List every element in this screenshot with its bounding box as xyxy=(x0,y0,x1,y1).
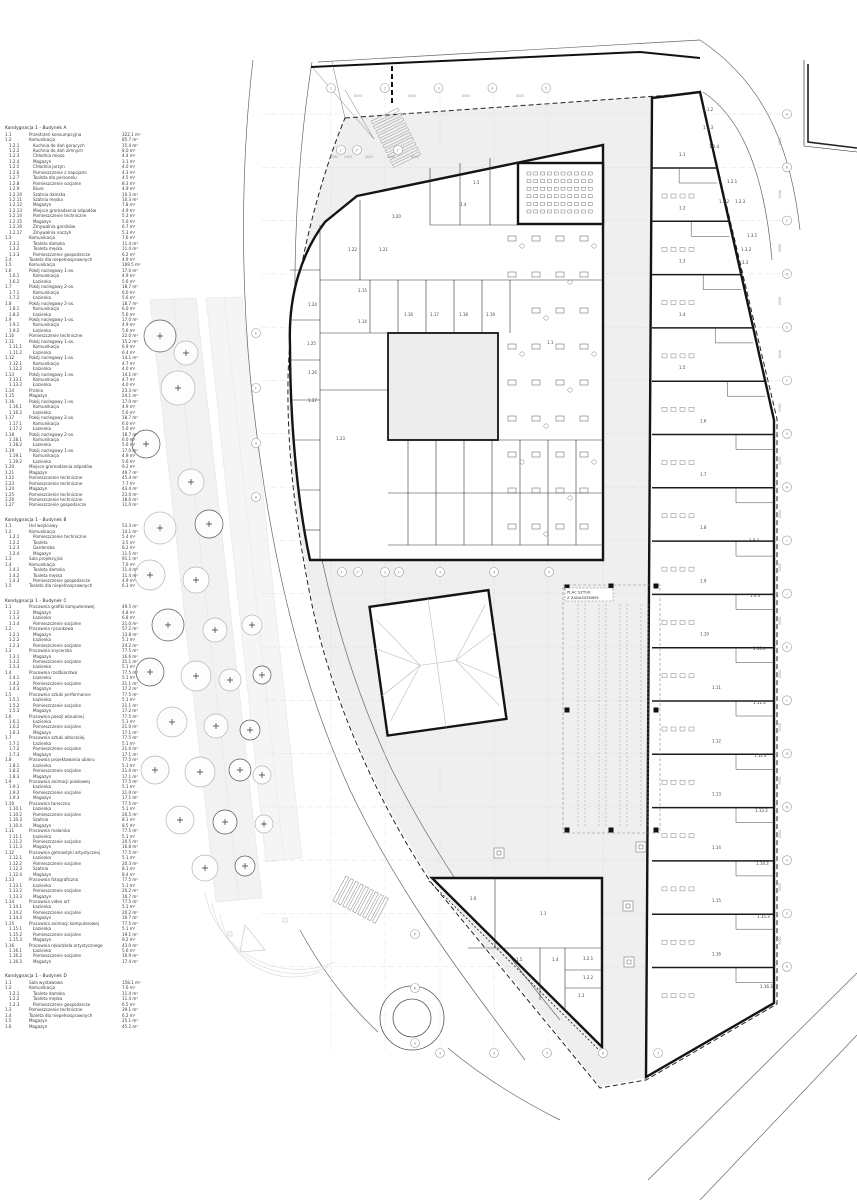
room-number-label: 1.16 xyxy=(712,952,721,957)
dimension-text: 8000 xyxy=(408,94,416,98)
column-icon xyxy=(654,708,659,713)
room-area: 17.4 m² xyxy=(122,959,147,964)
grid-bubble-label: F xyxy=(255,386,257,390)
room-number-label: 1.26 xyxy=(308,370,317,375)
room-number-label: 1.1 xyxy=(679,152,686,157)
dimension-text: 2000 xyxy=(387,155,395,159)
dimension-text: 8000 xyxy=(778,190,782,198)
room-number: 1.16.3 xyxy=(5,959,33,964)
room-number-label: 1.2.3 xyxy=(735,199,746,204)
column-marker xyxy=(624,957,634,967)
legend-section: Kondygnacja 1 - Budynek B1.1Hol wejściow… xyxy=(5,518,147,589)
room-number-label: 1.14 xyxy=(358,319,367,324)
room-number-label: 1.3 xyxy=(679,259,686,264)
grid-bubble-label: L xyxy=(786,699,788,703)
dimension-text: 2405 xyxy=(344,155,352,159)
room-number: 1.6 xyxy=(5,1024,29,1029)
zebra-stripe xyxy=(348,884,364,910)
room-number-label: 1.2.1 xyxy=(583,956,594,961)
zebra-stripe xyxy=(363,892,379,918)
room-number-label: 1.2.2 xyxy=(719,199,730,204)
room-number-label: 1.13 xyxy=(712,792,721,797)
dimension-text: 8000 xyxy=(778,403,782,411)
room-number-label: 1.21 xyxy=(379,247,388,252)
dimension-text: 8000 xyxy=(354,94,362,98)
room-number-label: 1.20 xyxy=(392,214,401,219)
grid-bubble-label: D xyxy=(786,272,789,276)
courtyard xyxy=(388,333,498,440)
dimension-text: 8000 xyxy=(516,94,524,98)
column-marker xyxy=(636,842,646,852)
room-number-label: 1.5 xyxy=(516,957,523,962)
dimension-text: 8000 xyxy=(778,777,782,785)
room-number-label: 1.6 xyxy=(470,896,477,901)
room-number-label: 1.25 xyxy=(307,341,316,346)
grid-bubble-label: O xyxy=(786,859,789,863)
room-number: 1.27 xyxy=(5,502,29,507)
column-icon xyxy=(565,828,570,833)
room-number-label: 1.5 xyxy=(679,365,686,370)
dimension-text: 8000 xyxy=(778,617,782,625)
grid-bubble-label: 5 xyxy=(548,570,550,574)
grid-bubble-label: M xyxy=(785,752,788,756)
room-number-label: 1.15 xyxy=(358,288,367,293)
room-number-label: 1.11 xyxy=(712,685,721,690)
room-number-label: 1.8 xyxy=(700,525,707,530)
grid-bubble-label: J xyxy=(785,592,787,596)
room-number-label: 1.7 xyxy=(700,472,707,477)
grid-bubble-label: H xyxy=(255,495,258,499)
grid-bubble-label: 3 xyxy=(439,1051,441,1055)
grid-bubble-label: G xyxy=(255,441,258,445)
room-number-label: 1.10 xyxy=(700,632,709,637)
room-number-label: 1.2 xyxy=(679,205,686,210)
room-number-label: 1.1.4 xyxy=(709,144,720,149)
grid-bubble-label: 5 xyxy=(546,1051,548,1055)
room-number-label: 1.14.3 xyxy=(756,861,769,866)
zebra-stripe xyxy=(367,894,383,920)
zebra-stripe xyxy=(372,897,388,923)
dimension-text: 8000 xyxy=(778,883,782,891)
grid-bubble-label: 2 xyxy=(384,86,386,90)
dimension-text: 8000 xyxy=(778,670,782,678)
grid-bubble-label: N xyxy=(786,805,789,809)
room-number-label: 1.4 xyxy=(460,202,467,207)
room-number-label: 1.15 xyxy=(712,898,721,903)
grid-bubble-label: 5 xyxy=(545,86,547,90)
zebra-stripe xyxy=(358,889,374,915)
column-marker xyxy=(623,901,633,911)
dimension-text: 8000 xyxy=(778,936,782,944)
plac-label-line2: Z ZADASZENIEM xyxy=(567,595,599,600)
room-number-label: 1.10.4 xyxy=(753,646,766,651)
room-number-label: 1.9 xyxy=(700,578,707,583)
room-number-label: 1.1 xyxy=(547,340,554,345)
legend-row: 1.27Pomieszczenie gospodarcze11.0 m² xyxy=(5,502,147,507)
grid-bubble-label: 1" xyxy=(356,570,360,574)
room-number-label: 1.3.3 xyxy=(738,260,749,265)
dimension-text: 4000 xyxy=(365,155,373,159)
playground xyxy=(205,893,335,977)
building-c xyxy=(646,92,774,1077)
room-name: Magazyn xyxy=(33,959,122,964)
dimension-text: 8000 xyxy=(778,244,782,252)
room-number-label: 1.8.3 xyxy=(749,538,760,543)
room-name: Pomieszczenie gospodarcze xyxy=(29,502,122,507)
dimension-text: 6000 xyxy=(411,155,419,159)
room-number-label: 1.12.4 xyxy=(754,753,767,758)
room-number-label: 1.1 xyxy=(540,911,547,916)
grid-bubble-label: 2' xyxy=(397,570,400,574)
room-number-label: 1.18 xyxy=(459,312,468,317)
room-number-label: 1.6 xyxy=(700,419,707,424)
legend-row: 1.5Toaleta dla niepełnosprawnych6.3 m² xyxy=(5,583,147,588)
column-icon xyxy=(654,828,659,833)
zebra-stripe xyxy=(343,881,359,907)
room-number-label: 1.5 xyxy=(473,180,480,185)
room-number-label: 1.23 xyxy=(336,436,345,441)
column-icon xyxy=(609,828,614,833)
room-number-label: 1.3.2 xyxy=(741,247,752,252)
grid-bubble-label: 1' xyxy=(340,570,343,574)
room-number-label: 1.3.1 xyxy=(747,233,758,238)
room-number-label: 1.3 xyxy=(578,993,585,998)
grid-bubble-label: G xyxy=(786,432,789,436)
grid-bubble-label: 7 xyxy=(657,1051,659,1055)
dimension-text: 8000 xyxy=(462,94,470,98)
room-number: 1.5 xyxy=(5,583,29,588)
room-number-label: 1.4 xyxy=(679,312,686,317)
grid-bubble-label: F xyxy=(786,379,788,383)
building-d-outline xyxy=(432,878,602,1047)
zebra-stripe xyxy=(333,876,349,902)
neighbour-building xyxy=(804,60,857,152)
grid-bubble-label: 2' xyxy=(396,148,399,152)
room-name: Toaleta dla niepełnosprawnych xyxy=(29,583,122,588)
dimension-text: 8000 xyxy=(778,137,782,145)
legend-row: 1.6Magazyn45.2 m² xyxy=(5,1024,147,1029)
room-number-label: 1.2.1 xyxy=(727,179,738,184)
room-name: Magazyn xyxy=(29,1024,122,1029)
room-area: 11.0 m² xyxy=(122,502,147,507)
room-number-label: 1.4 xyxy=(552,957,559,962)
plac-label-line1: PLAC SZTUK xyxy=(567,590,591,595)
grid-bubble-label: H xyxy=(786,486,789,490)
dimension-text: 8000 xyxy=(778,510,782,518)
room-number-label: 1.16 xyxy=(404,312,413,317)
room-number-label: 1.17 xyxy=(430,312,439,317)
zebra-stripe xyxy=(353,887,369,913)
column-icon xyxy=(565,708,570,713)
room-area: 6.3 m² xyxy=(122,583,147,588)
dimension-text: 1560 xyxy=(330,155,338,159)
room-number-label: 1.15.3 xyxy=(757,914,770,919)
grid-bubble-label: 3 xyxy=(439,570,441,574)
room-number-label: 1.11.3 xyxy=(753,700,766,705)
grid-bubble-label: 1 xyxy=(330,86,332,90)
room-area: 45.2 m² xyxy=(122,1024,147,1029)
zebra-stripe xyxy=(338,879,354,905)
room-number-label: 1.14 xyxy=(712,845,721,850)
room-number-label: 1.1.2 xyxy=(703,107,714,112)
grid-bubble-label: 1' xyxy=(339,148,342,152)
crosswalk-south xyxy=(333,876,389,923)
room-number-label: 1.24 xyxy=(308,302,317,307)
dimension-text: 8000 xyxy=(778,457,782,465)
column-icon xyxy=(654,584,659,589)
dimension-text: 8000 xyxy=(778,350,782,358)
grid-bubble-label: 2 xyxy=(384,570,386,574)
room-number-label: 1.16.3 xyxy=(760,984,773,989)
room-number-label: 1.1.3 xyxy=(703,125,714,130)
legend-row: 1.16.3Magazyn17.4 m² xyxy=(5,959,147,964)
room-number-label: 1.13.3 xyxy=(755,808,768,813)
legend-section: Kondygnacja 1 - Budynek C1.1Pracownia gr… xyxy=(5,599,147,965)
room-number-label: 1.27 xyxy=(308,398,317,403)
room-schedule-legend: Kondygnacja 1 - Budynek A1.1Przestrzeń k… xyxy=(5,126,147,1039)
dimension-text: 8000 xyxy=(778,723,782,731)
dimension-text: 8000 xyxy=(778,830,782,838)
room-number-label: 1.12 xyxy=(712,738,721,743)
legend-section: Kondygnacja 1 - Budynek A1.1Przestrzeń k… xyxy=(5,126,147,508)
column-marker xyxy=(494,848,504,858)
grid-bubble-label: 3 xyxy=(437,86,439,90)
room-number-label: 1.9.3 xyxy=(750,593,761,598)
dimension-text: 8000 xyxy=(778,563,782,571)
building-b-roof xyxy=(370,590,507,735)
room-number-label: 1.19 xyxy=(486,312,495,317)
legend-section: Kondygnacja 1 - Budynek D1.1Sala wystawo… xyxy=(5,974,147,1029)
dimension-text: 8000 xyxy=(778,297,782,305)
room-number-label: 1.22 xyxy=(348,247,357,252)
grid-bubble-label: 1" xyxy=(355,148,359,152)
room-number-label: 1.2.2 xyxy=(583,975,594,980)
grid-bubble-label: I xyxy=(786,539,787,543)
